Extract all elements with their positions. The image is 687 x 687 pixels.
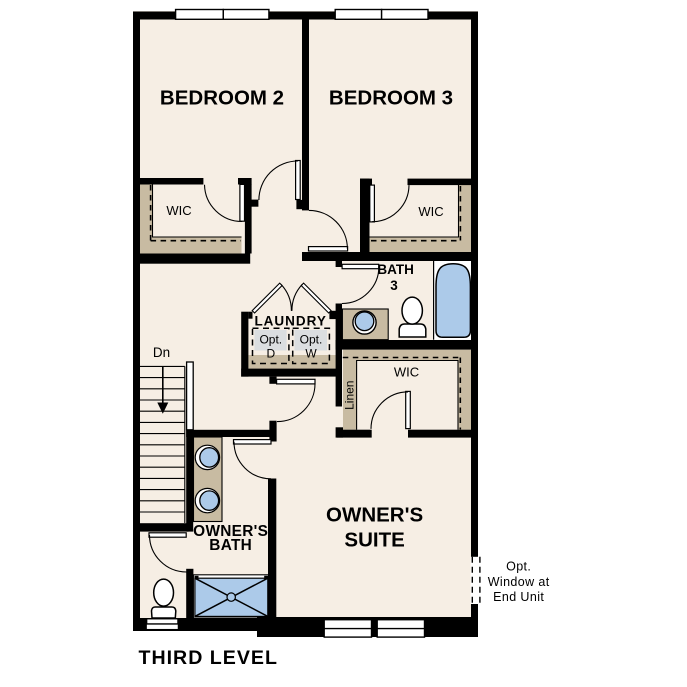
svg-text:BATH: BATH [377, 262, 414, 277]
svg-text:End Unit: End Unit [493, 590, 544, 604]
svg-text:THIRD LEVEL: THIRD LEVEL [139, 647, 278, 669]
svg-text:BEDROOM 3: BEDROOM 3 [329, 87, 453, 110]
svg-text:D: D [266, 346, 275, 360]
svg-text:Dn: Dn [153, 345, 170, 360]
svg-text:W: W [305, 346, 317, 360]
svg-text:WIC: WIC [166, 203, 191, 218]
svg-text:Opt.: Opt. [300, 333, 323, 347]
svg-text:Linen: Linen [342, 381, 356, 410]
svg-text:Opt.: Opt. [506, 560, 531, 574]
svg-text:LAUNDRY: LAUNDRY [254, 313, 327, 328]
svg-text:BATH: BATH [209, 537, 252, 554]
svg-text:Opt.: Opt. [259, 333, 282, 347]
svg-text:WIC: WIC [394, 365, 419, 380]
svg-text:OWNER'S: OWNER'S [326, 504, 423, 527]
svg-text:WIC: WIC [418, 204, 443, 219]
svg-text:3: 3 [390, 278, 398, 293]
svg-text:Window at: Window at [488, 575, 550, 589]
svg-text:BEDROOM 2: BEDROOM 2 [160, 87, 284, 110]
svg-text:SUITE: SUITE [344, 529, 404, 552]
